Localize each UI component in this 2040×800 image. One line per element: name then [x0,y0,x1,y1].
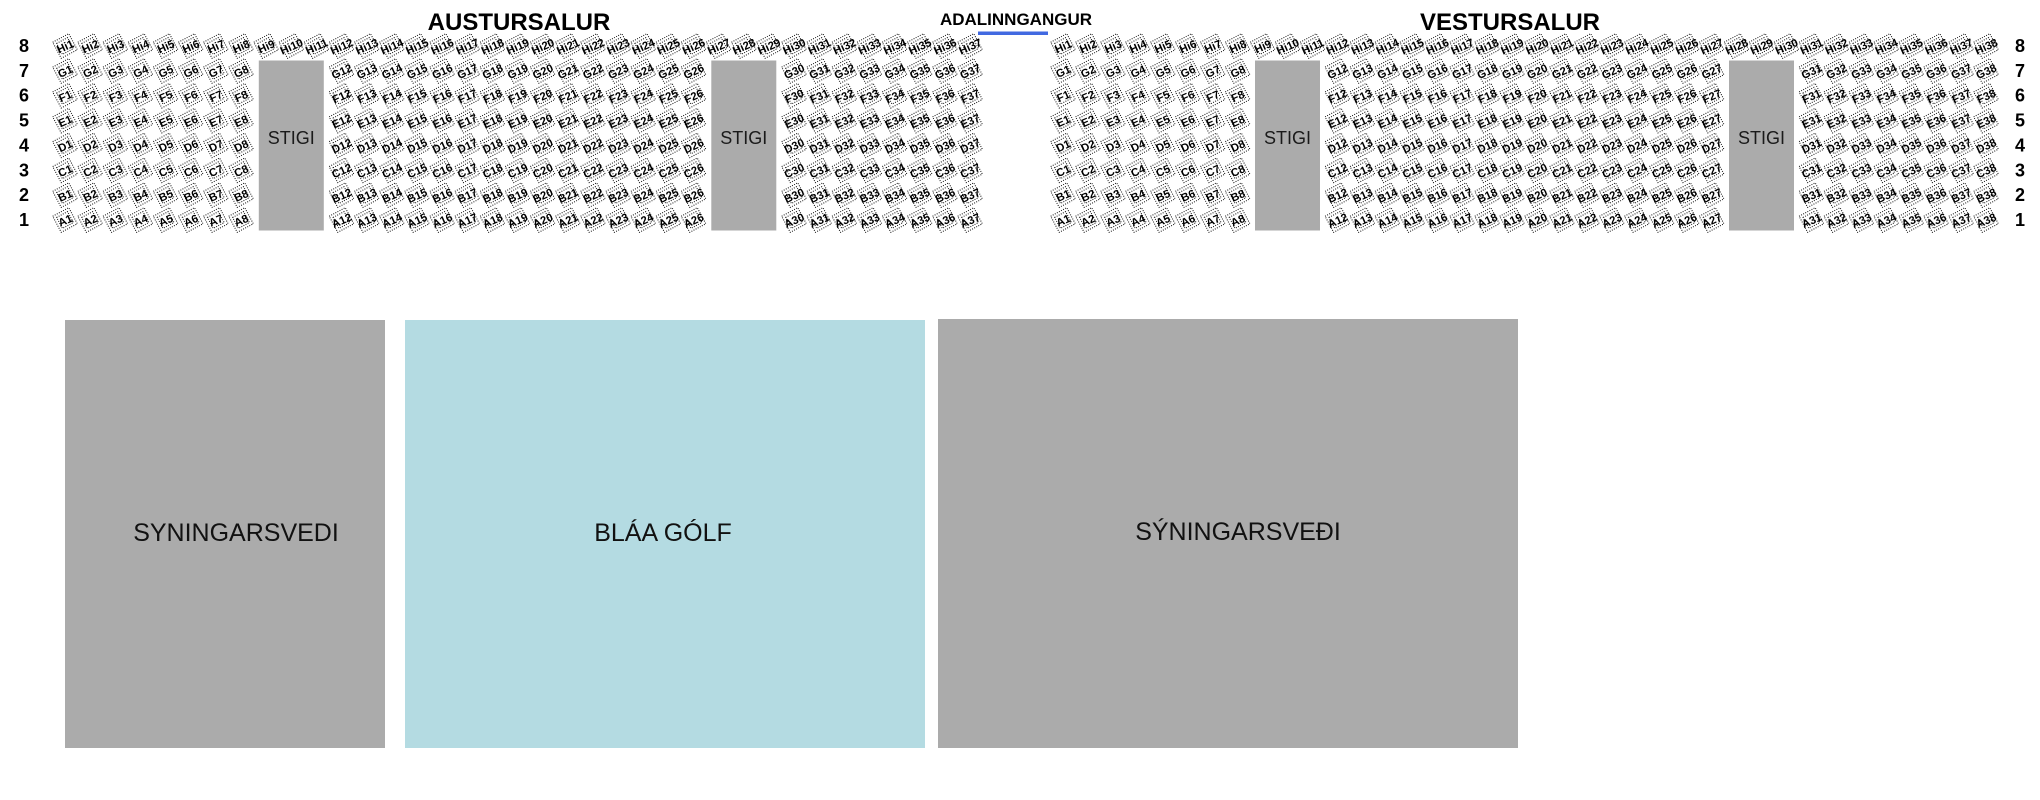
svg-text:BLÁA GÓLF: BLÁA GÓLF [594,518,732,547]
svg-text:VESTURSALUR: VESTURSALUR [1420,9,1600,36]
svg-text:SYNINGARSVEDI: SYNINGARSVEDI [133,519,339,547]
svg-text:STIGI: STIGI [268,128,315,148]
svg-text:STIGI: STIGI [1264,128,1311,148]
svg-text:6: 6 [2015,86,2025,106]
svg-text:8: 8 [2015,36,2025,56]
svg-text:SÝNINGARSVEÐI: SÝNINGARSVEÐI [1135,517,1341,546]
svg-text:2: 2 [2015,185,2025,205]
svg-text:ADALINNGANGUR: ADALINNGANGUR [940,10,1092,29]
svg-text:4: 4 [2015,135,2025,155]
svg-text:1: 1 [2015,210,2025,230]
svg-text:2: 2 [19,185,29,205]
svg-text:STIGI: STIGI [720,128,767,148]
svg-text:5: 5 [2015,111,2025,131]
svg-text:4: 4 [19,135,29,155]
svg-text:3: 3 [19,160,29,180]
svg-text:7: 7 [19,61,29,81]
svg-text:AUSTURSALUR: AUSTURSALUR [428,9,611,36]
svg-text:7: 7 [2015,61,2025,81]
svg-text:1: 1 [19,210,29,230]
svg-text:8: 8 [19,36,29,56]
svg-text:STIGI: STIGI [1738,128,1785,148]
svg-text:3: 3 [2015,160,2025,180]
svg-text:6: 6 [19,86,29,106]
svg-text:5: 5 [19,111,29,131]
